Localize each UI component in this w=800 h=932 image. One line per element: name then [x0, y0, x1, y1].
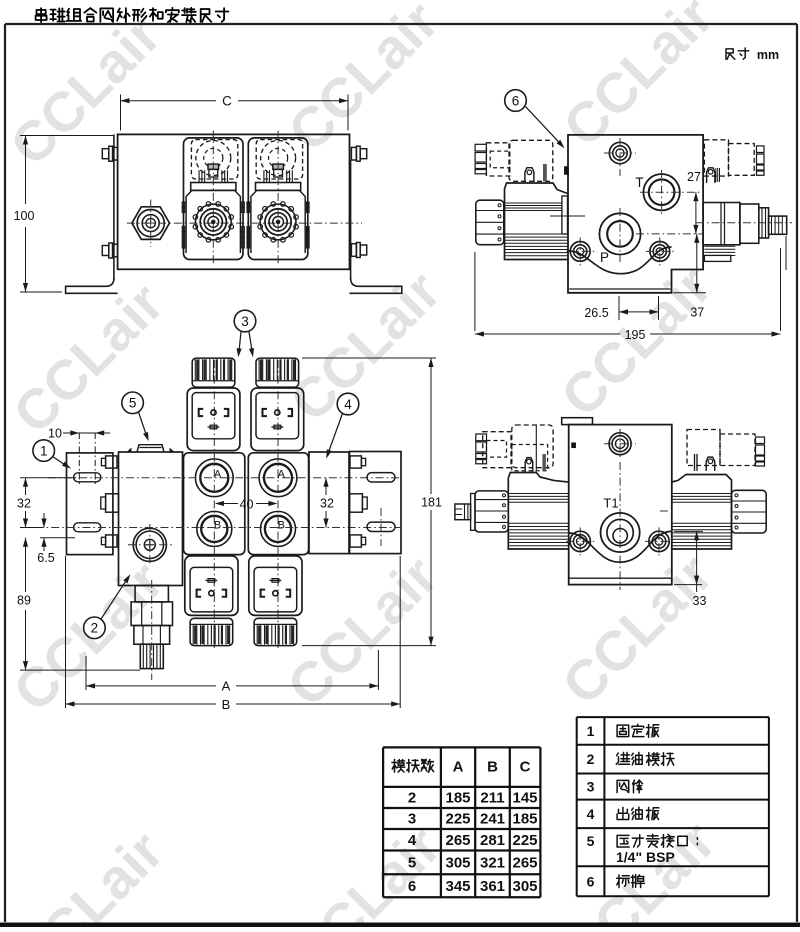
svg-text:225: 225: [445, 811, 470, 828]
svg-text:32: 32: [17, 497, 31, 511]
svg-text:T1: T1: [603, 496, 618, 511]
svg-text:37: 37: [690, 306, 704, 320]
svg-text:C: C: [222, 94, 232, 109]
svg-text:281: 281: [480, 832, 505, 849]
svg-text:32: 32: [320, 497, 334, 511]
svg-text:2: 2: [91, 621, 99, 636]
svg-text:B: B: [278, 520, 285, 532]
svg-text:265: 265: [445, 832, 470, 849]
svg-text:10: 10: [48, 427, 62, 441]
svg-text:345: 345: [445, 878, 470, 895]
svg-text:B: B: [487, 759, 498, 776]
svg-text:361: 361: [480, 878, 505, 895]
svg-text:241: 241: [480, 811, 505, 828]
svg-text:5: 5: [129, 396, 137, 411]
svg-text:40: 40: [240, 497, 254, 511]
svg-text:3: 3: [587, 779, 595, 795]
svg-text:305: 305: [445, 855, 470, 872]
svg-text:2: 2: [408, 790, 416, 807]
svg-text:A: A: [214, 469, 222, 481]
svg-text:A: A: [453, 759, 464, 776]
svg-text:C: C: [520, 759, 531, 776]
svg-text:185: 185: [512, 811, 537, 828]
svg-text:89: 89: [17, 594, 31, 608]
svg-text:145: 145: [512, 790, 537, 807]
svg-text:2: 2: [587, 751, 595, 767]
svg-text:3: 3: [241, 314, 249, 329]
svg-text:5: 5: [587, 833, 595, 849]
svg-text:4: 4: [344, 397, 352, 412]
svg-text:305: 305: [512, 878, 537, 895]
svg-text:1/4" BSP: 1/4" BSP: [616, 849, 675, 865]
svg-text:1: 1: [587, 723, 595, 739]
svg-text:26.5: 26.5: [584, 306, 608, 320]
svg-text:A: A: [278, 469, 286, 481]
svg-text:6: 6: [408, 878, 416, 895]
svg-text:195: 195: [625, 328, 646, 342]
svg-text:5: 5: [408, 855, 416, 872]
svg-text:mm: mm: [757, 48, 779, 62]
svg-text:T: T: [635, 175, 643, 190]
svg-text:181: 181: [421, 496, 442, 510]
svg-text:6: 6: [587, 873, 595, 889]
svg-text:33: 33: [693, 594, 707, 608]
svg-text:6.5: 6.5: [37, 551, 54, 565]
svg-text:P: P: [600, 250, 609, 265]
svg-text:6: 6: [512, 93, 520, 108]
svg-text:100: 100: [14, 209, 35, 223]
svg-text:27: 27: [687, 170, 701, 184]
svg-text:1: 1: [40, 443, 48, 458]
svg-text:B: B: [222, 697, 231, 712]
svg-text:3: 3: [408, 811, 416, 828]
svg-text:4: 4: [587, 806, 595, 822]
svg-text:321: 321: [480, 855, 505, 872]
svg-text:225: 225: [512, 832, 537, 849]
svg-text:B: B: [214, 520, 221, 532]
svg-text:211: 211: [480, 790, 504, 807]
svg-text:4: 4: [408, 832, 417, 849]
svg-text:185: 185: [445, 790, 470, 807]
svg-text:A: A: [222, 679, 231, 694]
svg-text:265: 265: [512, 855, 537, 872]
